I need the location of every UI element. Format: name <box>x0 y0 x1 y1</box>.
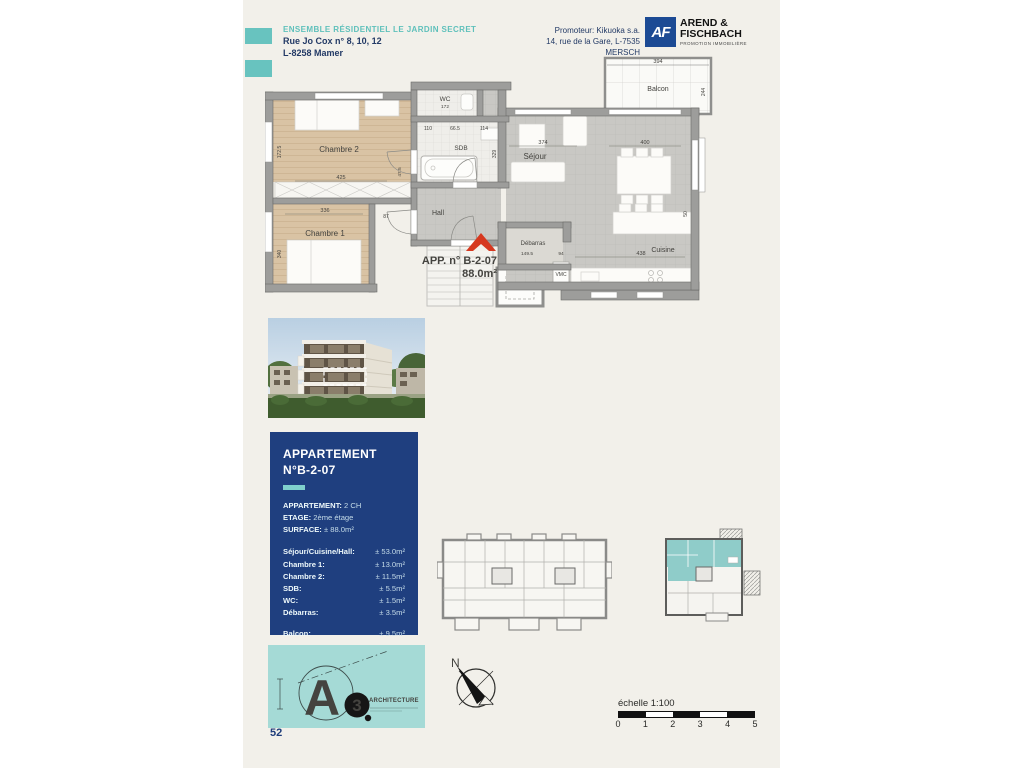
teal-accent-block <box>245 28 272 44</box>
dim: 50 <box>683 211 689 217</box>
area-row: Séjour/Cuisine/Hall:± 53.0m² <box>283 546 405 558</box>
key-plan <box>658 527 764 623</box>
dim: 394 <box>653 59 662 65</box>
room-label: Balcon <box>647 86 669 93</box>
room-label: SDB <box>454 145 467 152</box>
facade-wall <box>561 290 699 300</box>
toilet <box>461 94 473 110</box>
architect-logo-art: A 3 ARCHITECTURE <box>268 645 425 728</box>
room-label: Chambre 2 <box>319 145 359 154</box>
building-photo <box>268 318 425 418</box>
area-row: Chambre 1:± 13.0m² <box>283 559 405 571</box>
site-plan-thumbnail <box>437 532 612 635</box>
logo-number: 3 <box>352 696 361 715</box>
area-row: SDB:± 5.5m² <box>283 583 405 595</box>
scale-ticks: 0 1 2 3 4 5 <box>618 719 755 730</box>
scale-label: échelle 1:100 <box>618 698 755 709</box>
brochure-page: ENSEMBLE RÉSIDENTIEL LE JARDIN SECRET Ru… <box>243 0 780 768</box>
dim: 340 <box>277 250 283 259</box>
af-logo-icon: AF <box>645 17 676 47</box>
dim: 114 <box>480 126 488 132</box>
scale-ruler <box>618 711 755 718</box>
dim: 374 <box>538 140 547 146</box>
dim: 94 <box>558 251 564 257</box>
apartment-area: 88.0m² <box>462 268 497 280</box>
room-label: WC <box>440 96 451 103</box>
dim: 400 <box>640 140 649 146</box>
area-list: Séjour/Cuisine/Hall:± 53.0m² Chambre 1:±… <box>283 546 405 640</box>
page-number: 52 <box>270 727 282 739</box>
dim: 336 <box>320 208 329 214</box>
window <box>591 292 617 298</box>
balcony: 394 244 Balcon <box>605 58 711 114</box>
dim: 172.5 <box>277 146 283 159</box>
dim: 329 <box>492 150 498 159</box>
room-label: Séjour <box>523 152 546 161</box>
compass-needle <box>457 666 486 704</box>
dim: 110 <box>424 126 432 132</box>
apartment-info-panel: APPARTEMENT N°B-2-07 APPARTEMENT: 2 CH E… <box>270 432 418 635</box>
window <box>637 292 663 298</box>
architect-name: ARCHITECTURE <box>369 698 419 704</box>
area-row: Débarras:± 3.5m² <box>283 607 405 619</box>
detail-row: APPARTEMENT: 2 CH <box>283 500 405 512</box>
logo-tagline: PROMOTION IMMOBILIÈRE <box>680 41 747 46</box>
logo-name-line2: FISCHBACH <box>680 29 747 40</box>
panel-title: APPARTEMENT N°B-2-07 <box>283 447 405 478</box>
apartment-label: APP. n° B-2-07 <box>422 255 497 267</box>
hall-floor <box>415 188 501 240</box>
dim: 244 <box>701 88 707 97</box>
detail-row: SURFACE: ± 88.0m² <box>283 524 405 536</box>
floor-plan: 394 244 Balcon <box>265 54 741 310</box>
teal-divider <box>283 485 305 490</box>
scale-bar: échelle 1:100 0 1 2 3 4 5 <box>618 698 755 730</box>
detail-row: ETAGE: 2ème étage <box>283 512 405 524</box>
dim: 66.5 <box>450 126 460 132</box>
dim: 87 <box>383 214 389 220</box>
dim: 425 <box>336 175 345 181</box>
dim: 172 <box>441 104 449 110</box>
room-label: VMC <box>555 272 567 278</box>
area-row: WC:± 1.5m² <box>283 595 405 607</box>
area-row: Balcon:± 9.5m² <box>283 628 405 640</box>
dim: 47.5 <box>397 167 403 177</box>
room-label: Débarras <box>521 241 546 247</box>
architect-logo: A 3 ARCHITECTURE <box>268 645 425 728</box>
logo-letter: A <box>304 670 340 726</box>
dim: 149.5 <box>521 251 533 257</box>
room-label: Cuisine <box>651 247 674 254</box>
wardrobe <box>275 182 411 198</box>
arend-fischbach-logo: AF AREND & FISCHBACH PROMOTION IMMOBILIÈ… <box>645 17 747 47</box>
area-row: Chambre 2:± 11.5m² <box>283 571 405 583</box>
room-label: Hall <box>432 210 445 217</box>
room-label: Chambre 1 <box>305 229 345 238</box>
project-title: ENSEMBLE RÉSIDENTIEL LE JARDIN SECRET <box>283 25 503 34</box>
dim: 438 <box>636 251 645 257</box>
north-compass: N <box>445 653 505 715</box>
